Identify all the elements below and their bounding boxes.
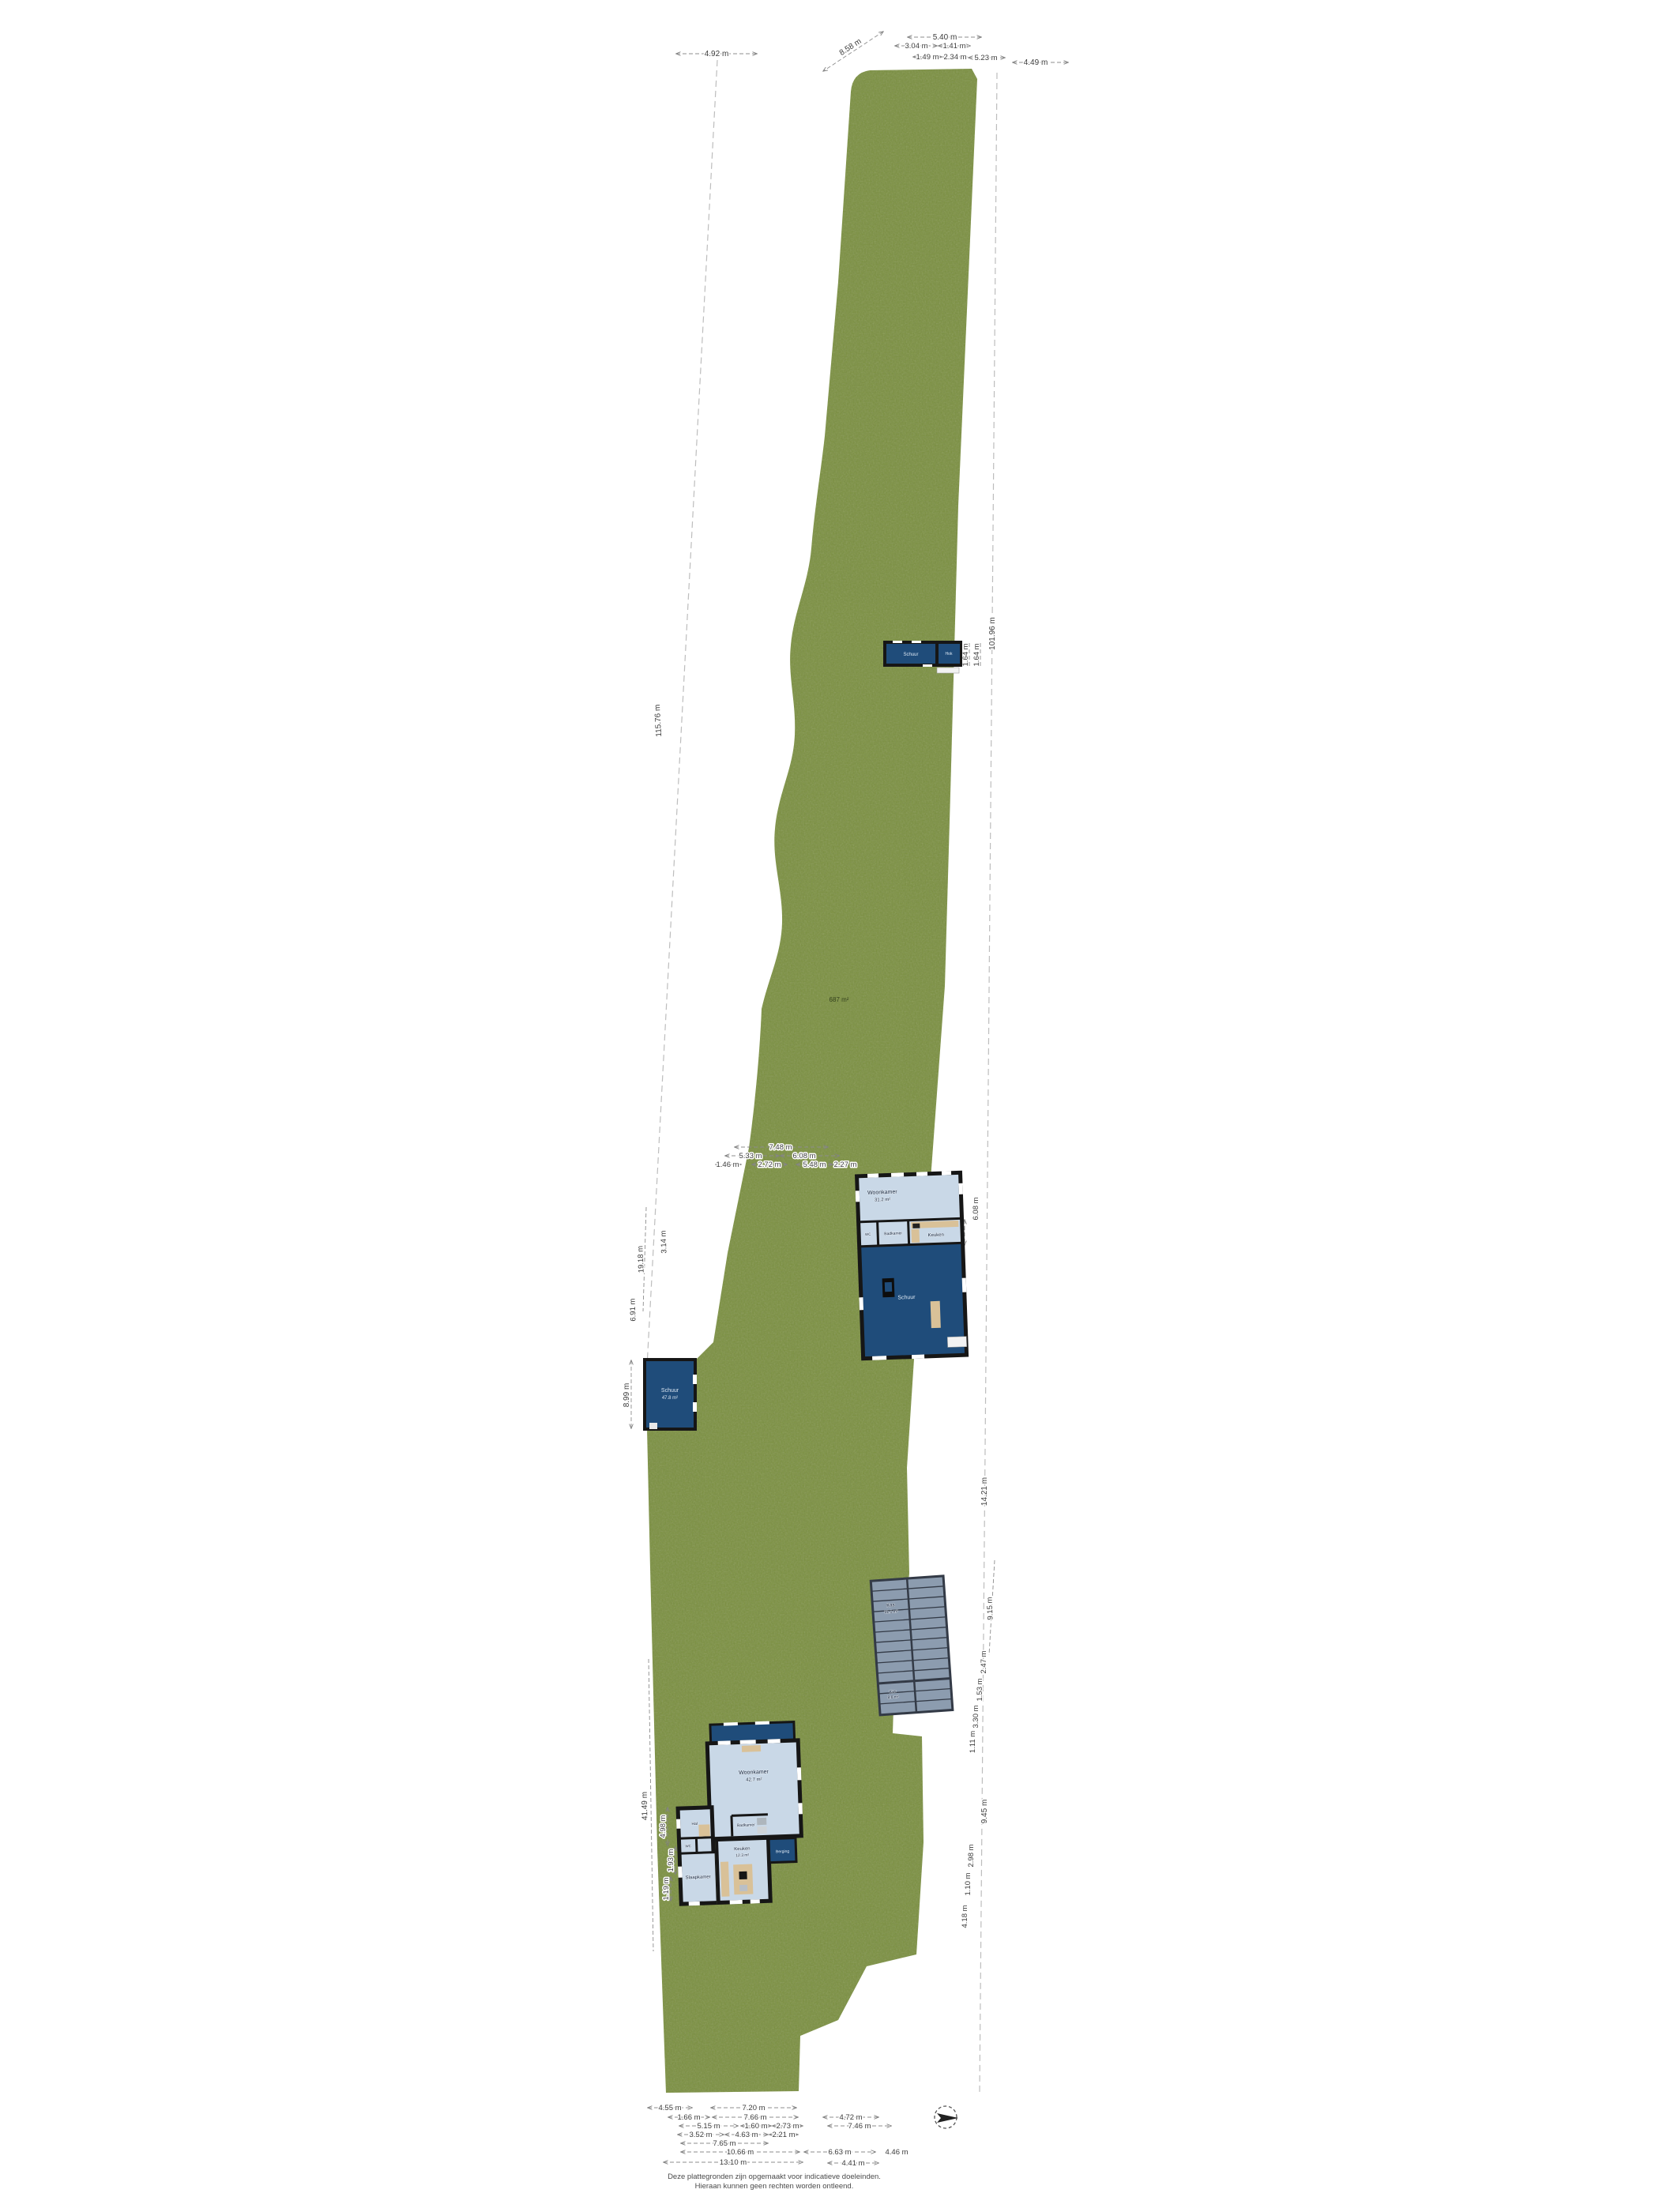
compass-needle [937, 2113, 958, 2123]
dimension-label: 5.33 m [739, 1152, 762, 1161]
window [942, 1171, 951, 1175]
dimension-label: 9.15 m [985, 1597, 995, 1619]
dimension-label: 1.64 m [972, 643, 981, 666]
room-area-label: 47.8 m² [662, 1396, 678, 1401]
north-arrow-icon [935, 2106, 958, 2128]
window [798, 1803, 802, 1814]
stove-icon [912, 1224, 920, 1228]
dimension-line [823, 32, 883, 71]
dimension-label: 2.73 m [776, 2122, 799, 2131]
dimension-label: 4.92 m [705, 50, 729, 58]
dimension-label: 9.45 m [980, 1800, 989, 1824]
dimension-label: 1.46 m [716, 1161, 739, 1169]
door [912, 1355, 924, 1360]
dimension-label: 8.99 m [623, 1383, 631, 1408]
dimension-label: 10.66 m [727, 2148, 754, 2157]
room-label: Schuur [903, 653, 918, 657]
room-area-label: 31.1 m² [884, 1609, 898, 1615]
dimension-label: 7.65 m [713, 2139, 735, 2148]
room-label: Woonkamer [739, 1770, 769, 1776]
building-farmhouse: Woonkamer 31.2 m² WC Badkamer Keuken Sch… [855, 1171, 969, 1361]
window [676, 1819, 680, 1829]
dimension-label: 3.14 m [659, 1230, 668, 1253]
dimension-label: 1.53 m [976, 1678, 984, 1701]
kitchen-counter [911, 1229, 920, 1243]
dimension-label: 5.40 m [933, 33, 957, 42]
window [724, 1722, 738, 1726]
dimension-label: 6.63 m [828, 2148, 851, 2157]
room-label: Kas [890, 1689, 897, 1695]
dimension-label: 14.21 m [980, 1477, 989, 1506]
bath-fixture [757, 1818, 766, 1825]
dimension-label: 115.76 m [653, 704, 664, 736]
door [872, 1356, 886, 1360]
window [893, 641, 902, 643]
building-shed-mid: Schuur 47.8 m² [643, 1358, 697, 1431]
dimension-label: 1.11 m [969, 1731, 977, 1753]
dimension-label: 2.21 m [772, 2131, 795, 2139]
room-label: Schuur [897, 1295, 916, 1301]
dimension-label: 7.48 m [769, 1143, 792, 1152]
dimension-label: 4.72 m [839, 2113, 862, 2122]
room-label: Hal [691, 1822, 698, 1826]
furniture [742, 1745, 761, 1752]
dimension-label: 7.20 m [742, 2104, 765, 2112]
dimension-label: 1.19 m [662, 1877, 671, 1900]
dimension-label: 1.66 m [677, 2113, 700, 2122]
dimension-label: 19.18 m [636, 1246, 645, 1273]
window [689, 1902, 700, 1905]
window [730, 1900, 743, 1905]
window [693, 1402, 697, 1412]
room-label: Hok [946, 652, 953, 656]
dimension-label: 1.41 m [942, 42, 965, 51]
dimension-label: 6.91 m [628, 1298, 638, 1321]
dimension-label: 5.48 m [803, 1161, 826, 1169]
plot-grass: 687 m² [640, 63, 1003, 2101]
dimension-label: 2.27 m [833, 1161, 856, 1169]
dimension-label: 4.98 m [659, 1815, 668, 1838]
boundary-line-right [980, 73, 997, 2092]
dimension-label: 3.52 m [689, 2131, 712, 2139]
site-plan: 687 m² 4.92 m 8.58 m 5.40 m 3.04 m 1.41 … [0, 0, 1659, 2212]
dimension-label: 101.96 m [988, 617, 997, 650]
dimension-label: 1.93 m [667, 1849, 675, 1872]
room-label: Keuken [927, 1233, 944, 1239]
bath-fixture [757, 1826, 766, 1834]
room-label: Badkamer [737, 1823, 755, 1828]
shed-room [646, 1361, 694, 1428]
dimension-label: 1.49 m [916, 53, 939, 62]
garden-area-label: 687 m² [829, 996, 849, 1003]
dimension-label: 5.15 m [697, 2122, 720, 2131]
dimension-label: 1.10 m [964, 1872, 972, 1895]
disclaimer-line-1: Deze plattegronden zijn opgemaakt voor i… [668, 2172, 881, 2181]
workbench [931, 1301, 941, 1328]
room-label: WC [865, 1232, 871, 1236]
dimension-label: 4.41 m [841, 2159, 864, 2168]
room-label: Berging [776, 1849, 790, 1855]
window [797, 1767, 802, 1780]
window [678, 1867, 682, 1878]
room-area-label: 8.6 m² [887, 1695, 899, 1700]
label-plate [947, 1337, 966, 1348]
window [740, 1740, 756, 1744]
grass-texture [640, 63, 1003, 2101]
stairs [698, 1824, 710, 1836]
sink-icon [739, 1885, 747, 1891]
dimension-label: 3.30 m [972, 1705, 980, 1728]
dimension-label: 6.08 m [792, 1152, 815, 1161]
window [856, 1191, 860, 1202]
room-area-label: 42.7 m² [746, 1777, 762, 1783]
window [755, 1721, 769, 1725]
stove-icon [739, 1872, 747, 1879]
building-greenhouse: Kas 31.1 m² Kas 8.6 m² [871, 1576, 953, 1715]
label-plate [937, 668, 959, 673]
dimension-label: 4.18 m [961, 1905, 969, 1928]
window [718, 1740, 731, 1745]
room-label: WC [685, 1844, 691, 1848]
window [912, 641, 921, 643]
dimension-label: 2.34 m [943, 53, 966, 62]
dimension-label: 1.64 m [961, 643, 970, 666]
disclaimer: Deze plattegronden zijn opgemaakt voor i… [668, 2172, 881, 2191]
room-area-label: 31.2 m² [875, 1198, 891, 1203]
dimension-label: 4.49 m [1024, 58, 1048, 67]
room-label: Slaapkamer [686, 1875, 711, 1880]
chimney-notch [885, 1282, 892, 1292]
window [891, 1172, 904, 1177]
dimension-label: 4.46 m [885, 2148, 908, 2157]
dimensions-bottom: 4.55 m 7.20 m 1.66 m 7.66 m 4.72 m 5.15 … [648, 2104, 908, 2168]
room-label: Keuken [734, 1847, 750, 1853]
room-label: Woonkamer [867, 1190, 897, 1196]
disclaimer-line-2: Hieraan kunnen geen rechten worden ontle… [695, 2182, 854, 2191]
dimension-label: 4.63 m [735, 2131, 758, 2139]
dimension-label: 2.72 m [758, 1161, 781, 1169]
dimension-label: 2.98 m [967, 1844, 976, 1867]
dimension-label: 2.47 m [980, 1650, 988, 1673]
window [958, 1183, 962, 1194]
door [649, 1423, 657, 1429]
room-label: Schuur [661, 1388, 679, 1394]
dimension-label: 5.23 m [974, 54, 997, 62]
dimension-label: 4.55 m [658, 2104, 681, 2112]
room-area-label: 12.3 m² [735, 1853, 749, 1859]
room-label: Kas [886, 1603, 895, 1608]
dimension-label: 7.66 m [743, 2113, 766, 2122]
kitchen-counter [720, 1862, 730, 1897]
dimension-label: 3.04 m [905, 42, 927, 51]
dimension-label: 6.08 m [972, 1197, 980, 1220]
dimension-label: 1.60 m [744, 2122, 767, 2131]
window [750, 1899, 760, 1903]
dimension-label: 7.46 m [848, 2122, 871, 2131]
window [859, 1297, 863, 1310]
dimension-label: 41.49 m [641, 1792, 650, 1820]
room-label: Badkamer [884, 1231, 902, 1236]
window [693, 1375, 697, 1384]
window [768, 1739, 781, 1744]
window [962, 1278, 967, 1292]
dimension-label: 13.10 m [720, 2158, 747, 2167]
window [916, 1172, 927, 1176]
room-small [698, 1838, 712, 1852]
dimensions-top: 4.92 m 8.58 m 5.40 m 3.04 m 1.41 m 1.49 … [676, 32, 1068, 71]
window [867, 1173, 878, 1177]
window [923, 664, 932, 667]
